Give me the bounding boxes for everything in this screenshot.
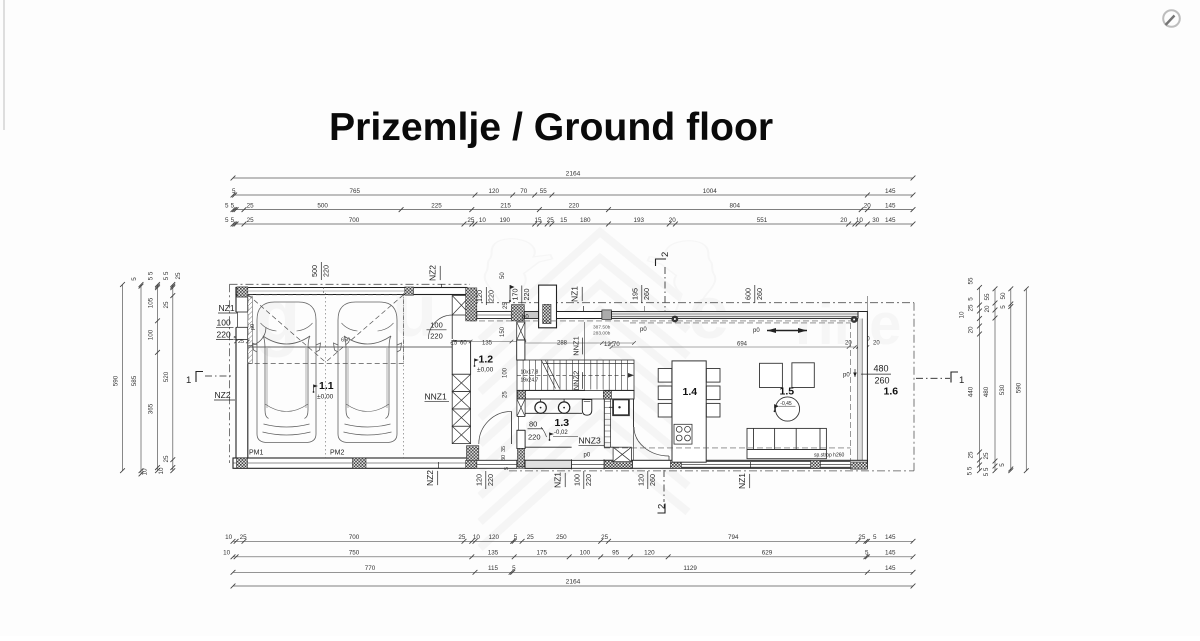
svg-text:25: 25 [458,534,466,541]
svg-text:15: 15 [560,217,568,224]
svg-text:260: 260 [642,288,651,300]
svg-text:20: 20 [873,341,880,347]
svg-text:25: 25 [467,217,475,224]
svg-text:95: 95 [612,550,620,557]
svg-text:551: 551 [757,217,768,224]
svg-text:5: 5 [225,202,229,209]
svg-text:120: 120 [489,534,500,541]
svg-text:220: 220 [584,474,593,486]
svg-text:1.4: 1.4 [683,386,698,398]
svg-text:70: 70 [520,188,528,195]
svg-text:2: 2 [660,252,671,257]
svg-text:145: 145 [885,534,896,541]
svg-text:500: 500 [310,265,319,277]
svg-text:NZ1: NZ1 [570,286,580,302]
svg-text:220: 220 [486,290,495,302]
svg-text:260: 260 [875,376,890,386]
svg-text:5: 5 [231,202,235,209]
svg-text:25: 25 [247,217,255,224]
svg-text:5: 5 [231,217,235,224]
svg-text:25: 25 [527,534,535,541]
svg-text:±0,00: ±0,00 [317,394,334,401]
svg-text:100: 100 [580,550,591,557]
svg-text:5 5: 5 5 [967,466,974,475]
svg-text:55: 55 [968,277,975,285]
svg-text:10: 10 [158,467,165,475]
svg-text:5: 5 [999,463,1006,467]
svg-text:145: 145 [885,550,896,557]
svg-text:2164: 2164 [566,171,581,178]
svg-text:NZ1: NZ1 [737,473,747,489]
svg-text:220: 220 [321,265,330,277]
svg-text:220: 220 [528,433,541,442]
svg-text:100: 100 [503,367,509,378]
svg-text:20: 20 [968,326,975,334]
svg-text:25: 25 [240,534,248,541]
svg-text:150: 150 [500,326,506,337]
svg-text:520: 520 [163,371,170,382]
svg-text:193: 193 [634,217,645,224]
svg-text:260: 260 [755,288,764,300]
svg-text:20: 20 [864,202,872,209]
svg-text:10: 10 [479,217,487,224]
svg-text:5: 5 [232,188,236,195]
svg-text:p0: p0 [522,315,529,321]
svg-text:25: 25 [858,534,866,541]
svg-text:220: 220 [217,329,231,339]
svg-text:Prizemlje / Ground floor: Prizemlje / Ground floor [329,106,773,149]
svg-text:440: 440 [968,386,975,397]
svg-text:195: 195 [631,288,640,300]
svg-text:NZ1: NZ1 [553,472,563,488]
svg-text:120: 120 [637,474,646,486]
svg-text:2164: 2164 [566,579,581,586]
svg-text:5: 5 [865,550,869,557]
svg-text:10: 10 [473,534,481,541]
svg-text:600: 600 [744,288,753,300]
svg-text:30: 30 [872,217,880,224]
svg-text:2: 2 [657,504,668,509]
svg-text:p0: p0 [250,324,256,330]
svg-text:±0,00: ±0,00 [477,367,494,374]
svg-text:5 5: 5 5 [983,467,990,476]
svg-text:5 5: 5 5 [163,271,170,280]
svg-text:5: 5 [1000,305,1007,309]
svg-text:480: 480 [874,364,889,374]
svg-text:25: 25 [175,272,182,280]
svg-text:10: 10 [225,534,233,541]
svg-text:NNZ1: NNZ1 [425,392,447,402]
svg-text:25: 25 [983,452,990,460]
svg-text:NNZ3: NNZ3 [579,436,601,446]
svg-text:260: 260 [648,474,657,486]
svg-text:5: 5 [873,534,877,541]
svg-text:80: 80 [529,420,537,429]
svg-text:135: 135 [488,550,499,557]
svg-text:p0: p0 [753,328,760,334]
svg-text:100: 100 [217,317,231,327]
svg-text:365: 365 [148,403,155,414]
svg-text:5: 5 [512,565,516,572]
svg-text:25: 25 [247,202,255,209]
svg-text:770: 770 [365,565,376,572]
svg-text:PM1: PM1 [249,450,264,457]
svg-text:NNZ1: NNZ1 [572,336,581,356]
svg-text:804: 804 [730,202,741,209]
svg-text:220: 220 [430,332,443,341]
svg-text:15: 15 [534,217,542,224]
svg-text:1129: 1129 [683,565,697,572]
svg-text:1.5: 1.5 [780,386,795,398]
svg-text:1004: 1004 [703,188,718,195]
svg-text:750: 750 [349,550,360,557]
svg-text:5: 5 [131,277,138,281]
svg-text:25: 25 [968,304,975,312]
svg-text:283.00b: 283.00b [593,331,611,337]
svg-text:25: 25 [601,534,609,541]
svg-text:1.2: 1.2 [479,354,494,366]
svg-text:5 5: 5 5 [148,271,155,280]
svg-text:1: 1 [186,375,191,386]
svg-text:1.3: 1.3 [555,417,570,429]
svg-text:50: 50 [500,272,506,279]
svg-text:p0: p0 [640,327,647,333]
svg-text:1.6: 1.6 [884,386,899,398]
svg-text:120: 120 [475,290,484,302]
svg-text:629: 629 [762,550,773,557]
svg-text:220: 220 [569,202,580,209]
svg-text:220: 220 [522,289,531,301]
svg-text:1.1: 1.1 [319,380,334,392]
svg-text:55: 55 [540,188,548,195]
svg-text:794: 794 [728,534,739,541]
svg-text:100: 100 [430,321,443,330]
svg-text:p0: p0 [843,373,850,379]
svg-text:250: 250 [556,534,567,541]
svg-text:120: 120 [489,188,500,195]
svg-text:220: 220 [486,474,495,486]
svg-text:5: 5 [968,297,975,301]
svg-text:100: 100 [573,474,582,486]
svg-text:-0,02: -0,02 [554,430,568,436]
svg-text:288: 288 [557,341,568,347]
svg-text:215: 215 [500,202,511,209]
svg-text:500: 500 [317,202,328,209]
svg-text:765: 765 [350,188,361,195]
svg-text:20: 20 [845,341,852,347]
svg-text:700: 700 [349,217,360,224]
svg-text:1: 1 [959,375,964,386]
svg-text:NZ2: NZ2 [215,390,231,400]
svg-text:590: 590 [113,375,120,386]
svg-text:5: 5 [504,467,510,470]
svg-text:700: 700 [349,534,360,541]
svg-text:25: 25 [547,217,555,224]
svg-text:25: 25 [163,455,170,463]
svg-text:145: 145 [885,188,896,195]
svg-text:120: 120 [475,474,484,486]
svg-text:10: 10 [959,311,966,319]
svg-text:20: 20 [840,217,848,224]
svg-text:20: 20 [984,305,991,313]
svg-text:10: 10 [223,550,231,557]
svg-text:145: 145 [885,217,896,224]
svg-text:NZ1: NZ1 [219,303,235,313]
svg-text:530: 530 [999,384,1006,395]
svg-text:105: 105 [148,297,155,308]
svg-text:180: 180 [580,217,591,224]
svg-text:170: 170 [511,289,520,301]
svg-text:20: 20 [669,217,677,224]
svg-text:10: 10 [142,468,149,476]
svg-text:5: 5 [514,534,518,541]
svg-text:NZ2: NZ2 [425,470,435,486]
svg-text:5: 5 [225,217,229,224]
svg-text:25: 25 [968,451,975,459]
svg-text:145: 145 [885,202,896,209]
svg-text:25: 25 [163,301,170,309]
svg-text:NZ2: NZ2 [428,265,438,281]
svg-text:30: 30 [501,455,507,461]
svg-text:p0: p0 [584,453,591,459]
svg-text:25: 25 [503,302,509,309]
svg-text:50: 50 [1000,292,1007,300]
svg-text:PM2: PM2 [330,450,345,457]
svg-text:55: 55 [984,293,991,301]
svg-text:480: 480 [983,386,990,397]
svg-text:585: 585 [131,375,138,386]
svg-text:25: 25 [238,339,244,345]
svg-text:694: 694 [737,342,748,348]
svg-text:387.50b: 387.50b [593,325,611,331]
svg-text:10x17.8: 10x17.8 [521,370,539,376]
svg-text:190: 190 [500,217,511,224]
svg-text:25: 25 [503,391,509,398]
svg-text:225: 225 [431,202,442,209]
svg-text:145: 145 [885,565,896,572]
svg-text:NNZ2: NNZ2 [572,371,581,391]
svg-text:10: 10 [856,217,864,224]
svg-text:115: 115 [488,565,499,572]
svg-text:100: 100 [148,329,155,340]
svg-text:175: 175 [536,550,547,557]
svg-text:sp.strop h260: sp.strop h260 [814,453,845,459]
svg-text:120: 120 [644,550,655,557]
svg-text:35: 35 [501,446,507,452]
svg-text:590: 590 [1015,382,1022,393]
svg-text:19x24.7: 19x24.7 [521,378,539,384]
